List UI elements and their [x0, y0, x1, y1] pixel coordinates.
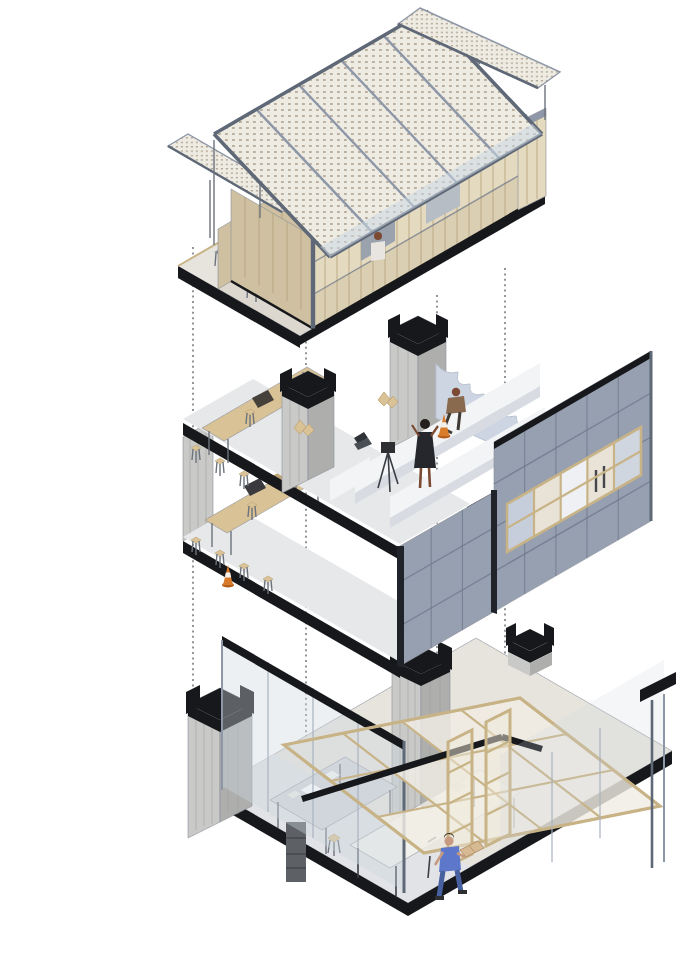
corner-post — [397, 546, 404, 668]
level-workspace-module — [183, 314, 651, 678]
level-roof-pavilion — [168, 8, 560, 348]
illustration-page — [0, 0, 700, 977]
level-ground-floor — [186, 636, 676, 916]
corner-post — [491, 490, 497, 614]
exploded-axonometric-illustration — [0, 0, 700, 977]
